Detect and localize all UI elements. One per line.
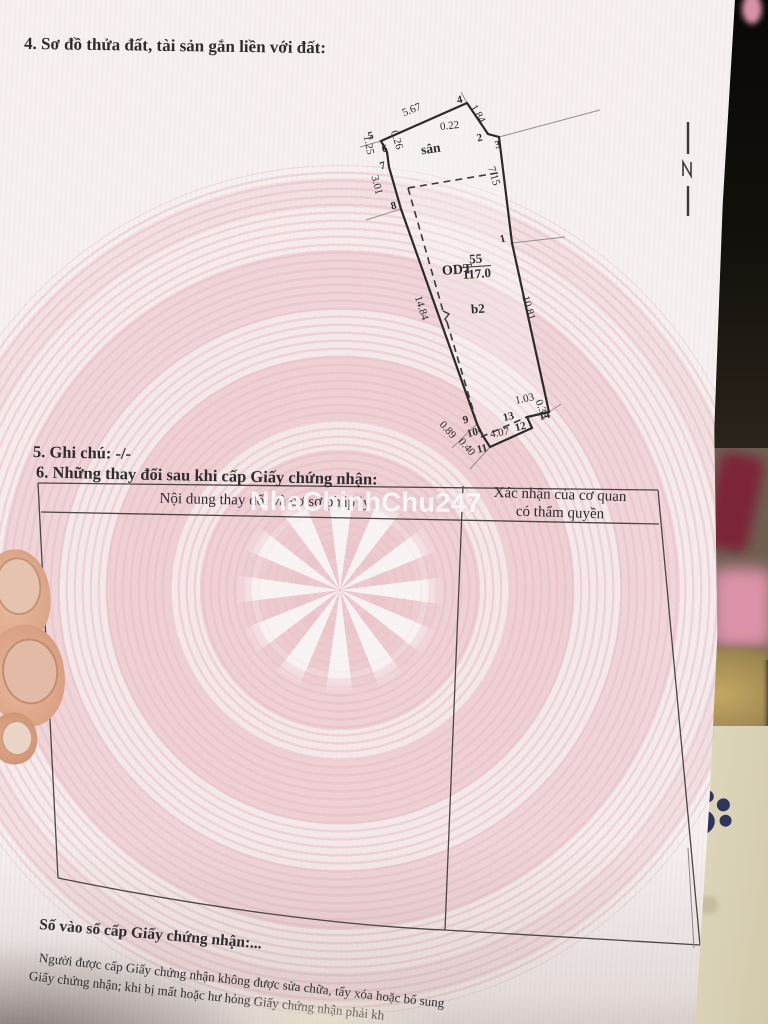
table-borders (38, 483, 700, 945)
north-arrow-icon (683, 122, 691, 216)
dim-0-22: 0.22 (439, 119, 459, 133)
blanket-highlight (200, 990, 440, 1024)
section5-note: 5. Ghi chú: -/- (33, 442, 131, 464)
fingernail (0, 636, 61, 707)
certificate-paper: 4. Sơ đồ thửa đất, tài sản gắn liền với … (0, 0, 768, 1024)
nhachinhchu247-watermark: NhaChinhChu247 (250, 486, 482, 519)
parcel-area: 117.0 (462, 266, 492, 283)
fingernail (0, 719, 35, 758)
pink-toy-object (712, 568, 768, 648)
fingernail (0, 555, 44, 617)
pink-object (742, 0, 762, 24)
yard-label: sân (420, 140, 442, 159)
section4-title: 4. Sơ đồ thửa đất, tài sản gắn liền với … (24, 34, 326, 58)
parcel-number-over-area: 55 117.0 (461, 251, 492, 282)
building-label: b2 (470, 301, 485, 318)
photo-of-land-certificate-page: 4. Sơ đồ thửa đất, tài sản gắn liền với … (0, 0, 768, 1024)
